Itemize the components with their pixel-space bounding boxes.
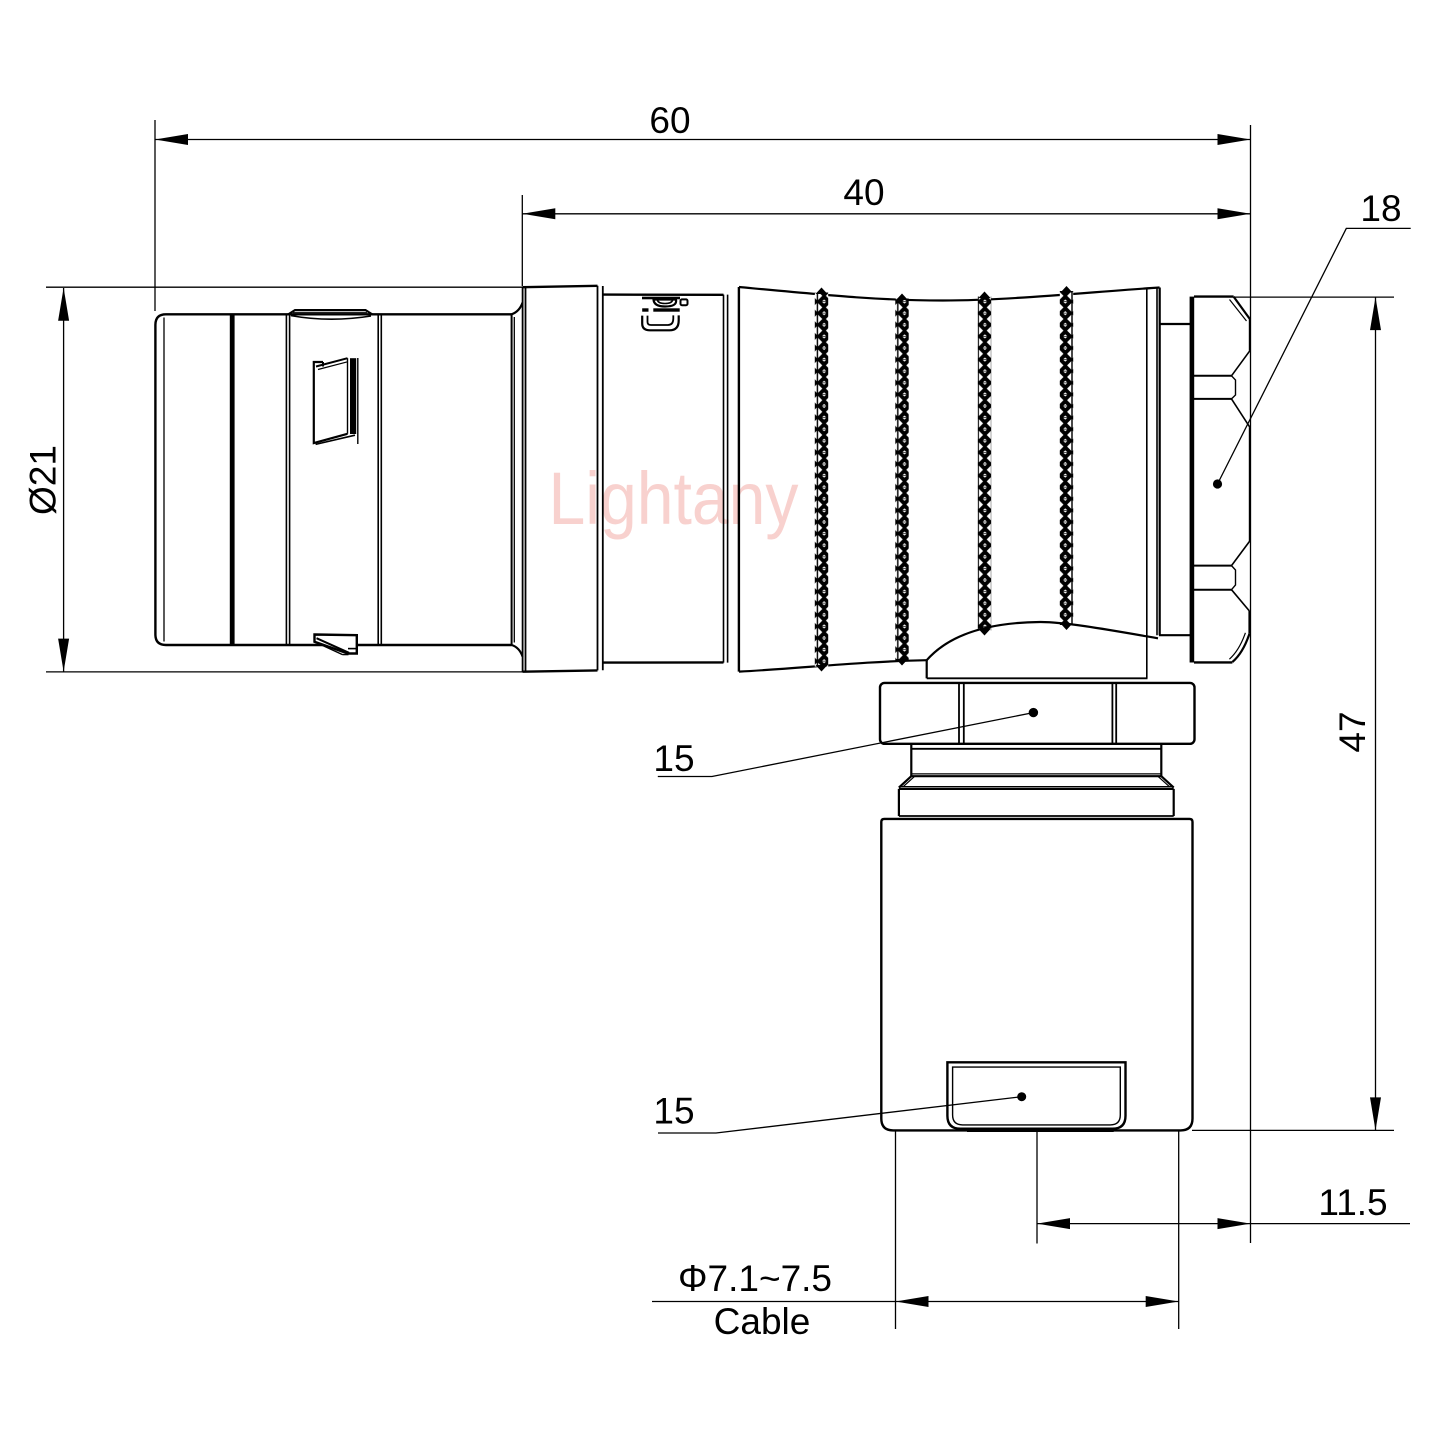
svg-text:Φ7.1~7.5: Φ7.1~7.5 [678,1258,832,1299]
svg-text:15: 15 [653,738,694,779]
svg-text:60: 60 [649,100,690,141]
svg-text:15: 15 [653,1091,694,1132]
svg-text:40: 40 [843,172,884,213]
svg-text:Ø21: Ø21 [23,445,64,515]
svg-text:Lightany: Lightany [549,457,799,540]
svg-text:47: 47 [1332,711,1373,752]
svg-text:11.5: 11.5 [1318,1182,1387,1223]
svg-text:Cable: Cable [714,1301,811,1342]
svg-text:18: 18 [1360,188,1401,229]
